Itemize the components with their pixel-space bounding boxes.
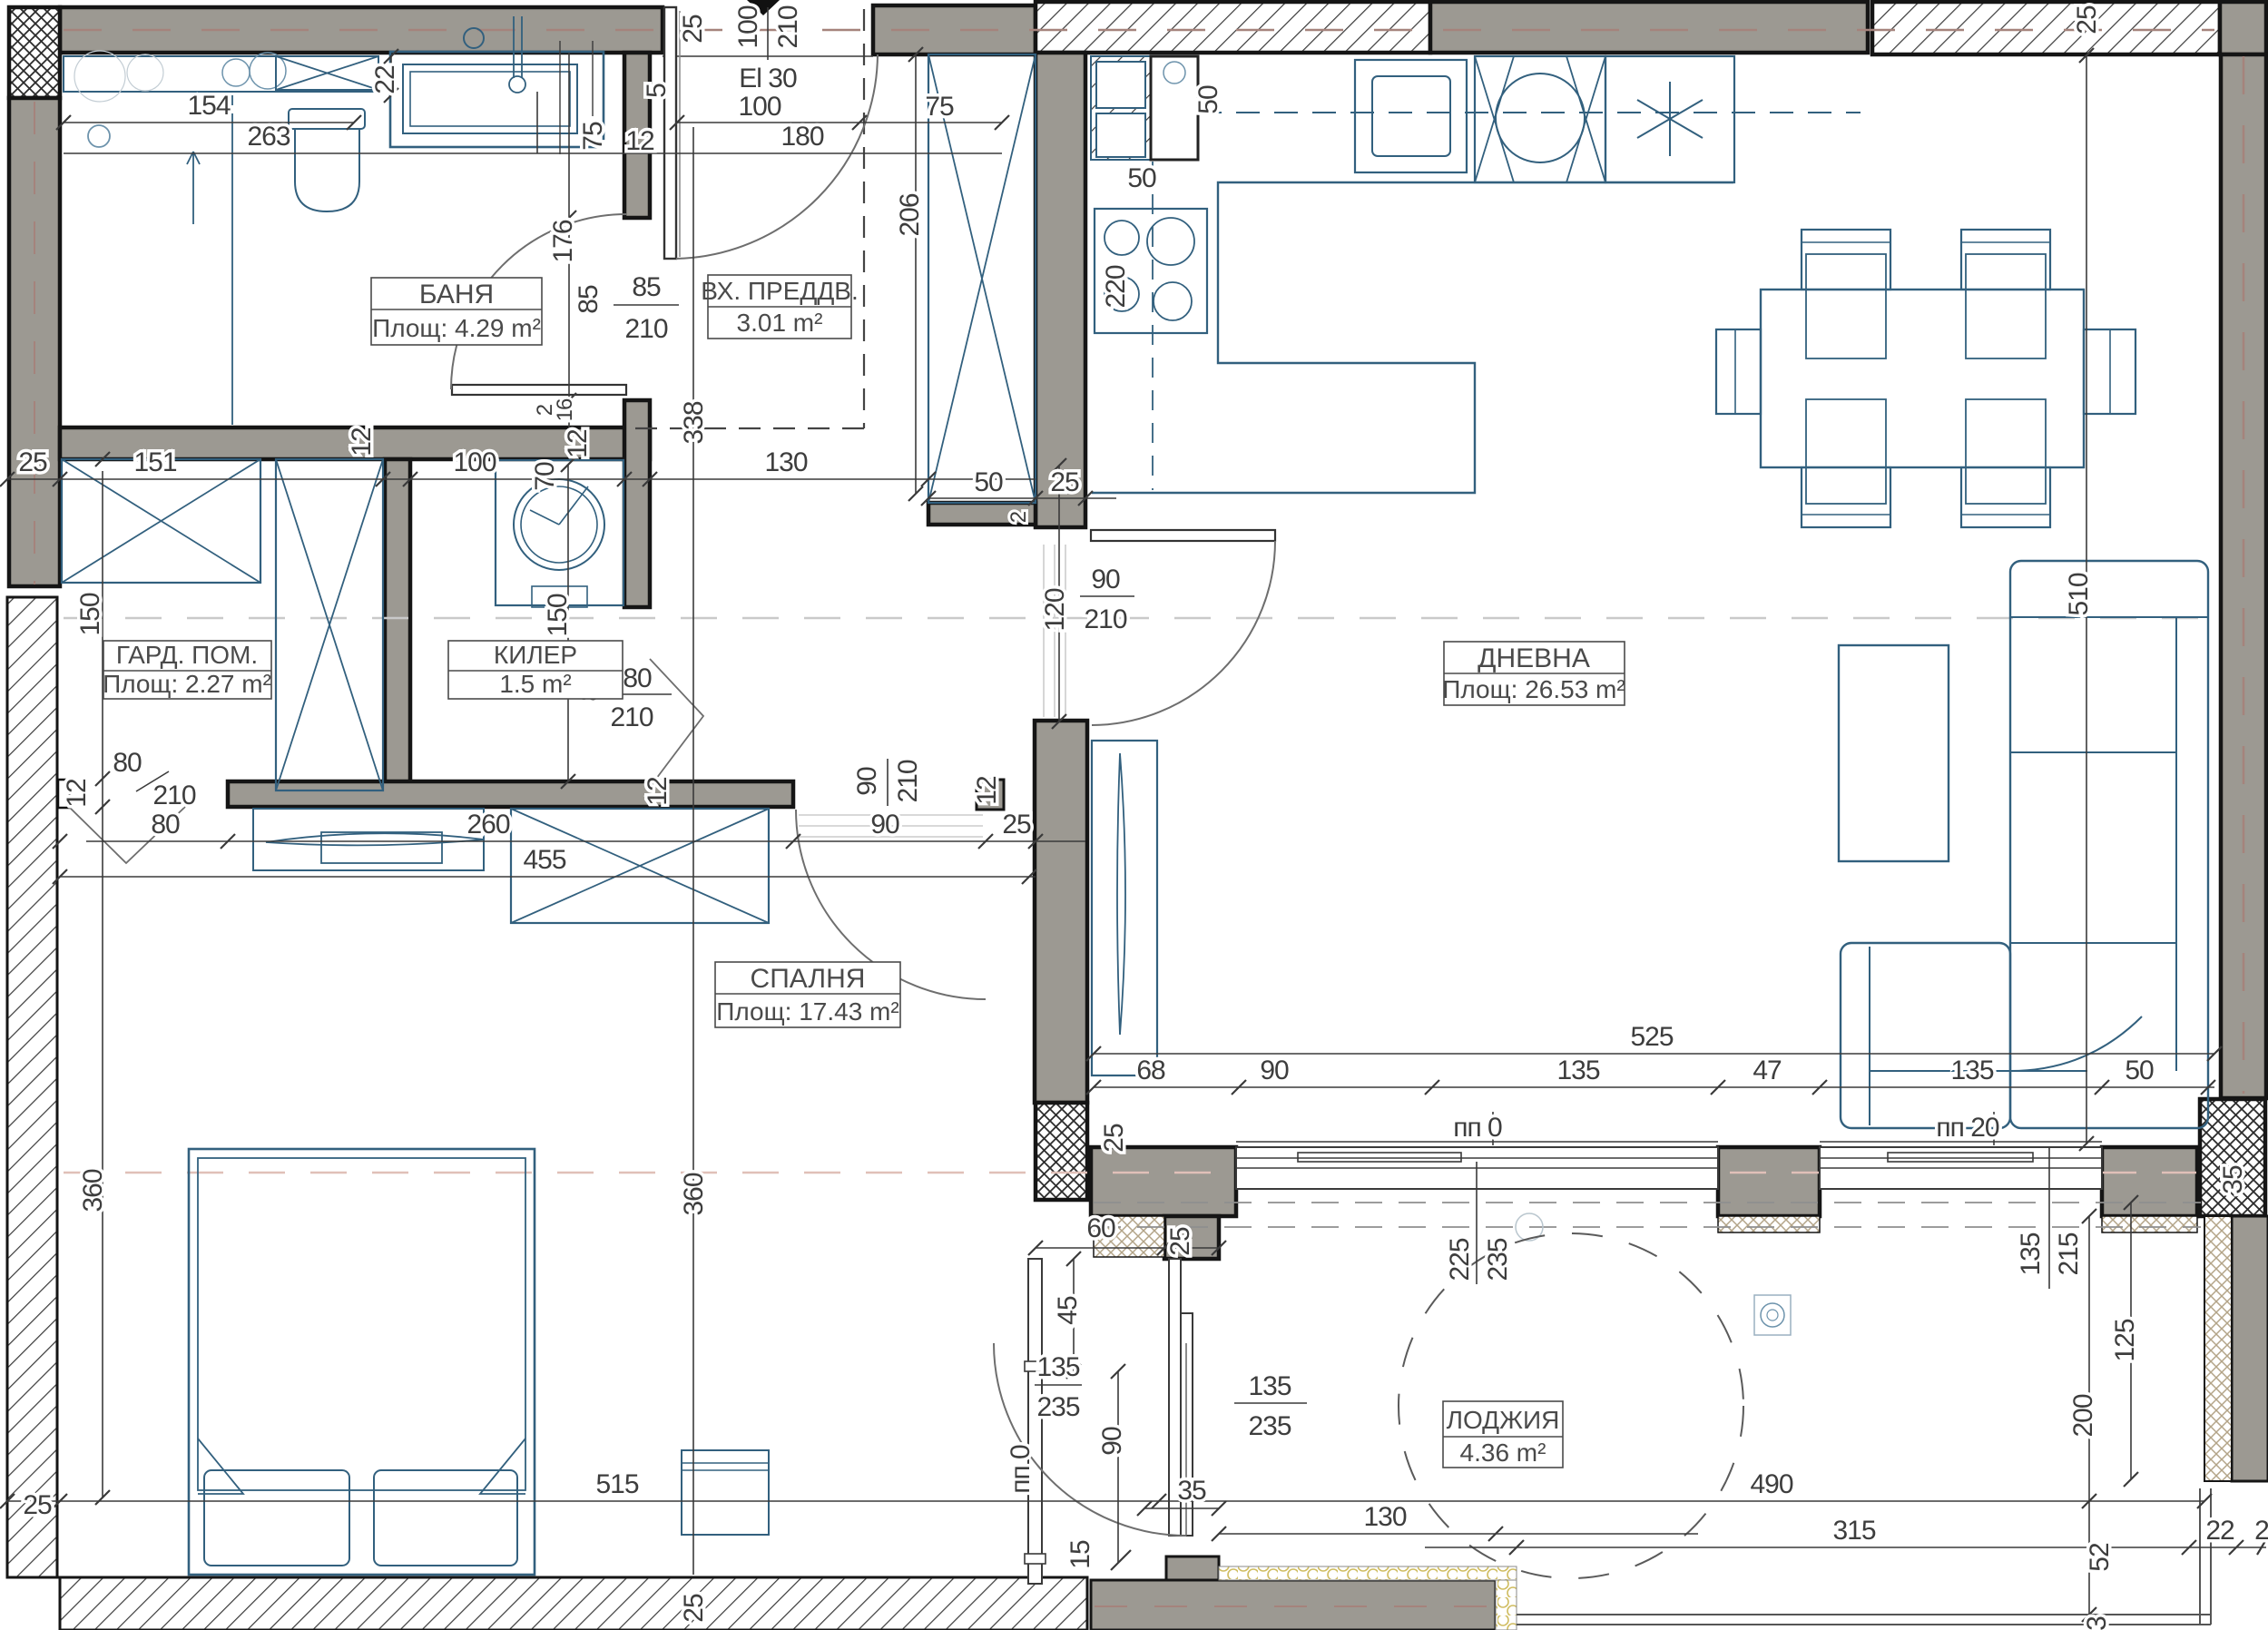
svg-text:210: 210 xyxy=(624,314,667,344)
svg-text:15: 15 xyxy=(1065,1540,1095,1569)
svg-text:35: 35 xyxy=(2218,1165,2248,1194)
svg-text:БАНЯ: БАНЯ xyxy=(419,280,494,309)
svg-text:150: 150 xyxy=(543,594,573,636)
svg-text:90: 90 xyxy=(1097,1427,1127,1456)
svg-text:120: 120 xyxy=(1040,588,1070,631)
svg-text:Площ: 26.53 m²: Площ: 26.53 m² xyxy=(1442,675,1625,703)
svg-text:220: 220 xyxy=(1101,265,1131,308)
svg-text:80: 80 xyxy=(151,810,180,840)
svg-text:151: 151 xyxy=(133,447,176,477)
svg-text:100: 100 xyxy=(453,447,496,477)
svg-text:12: 12 xyxy=(625,126,654,156)
svg-text:75: 75 xyxy=(578,122,608,151)
svg-text:50: 50 xyxy=(974,467,1003,497)
svg-text:52: 52 xyxy=(2085,1543,2115,1572)
svg-text:ЛОДЖИЯ: ЛОДЖИЯ xyxy=(1447,1406,1560,1434)
svg-text:90: 90 xyxy=(1091,565,1120,594)
svg-text:16: 16 xyxy=(553,398,577,421)
svg-text:1.5 m²: 1.5 m² xyxy=(499,670,571,698)
svg-text:510: 510 xyxy=(2064,573,2094,615)
svg-text:490: 490 xyxy=(1750,1469,1792,1499)
svg-text:135: 135 xyxy=(1248,1371,1291,1401)
svg-text:135: 135 xyxy=(2016,1232,2046,1275)
svg-text:СПАЛНЯ: СПАЛНЯ xyxy=(751,964,866,994)
svg-text:225: 225 xyxy=(1445,1238,1475,1281)
svg-text:КИЛЕР: КИЛЕР xyxy=(494,641,577,669)
svg-text:12: 12 xyxy=(62,779,92,808)
svg-text:135: 135 xyxy=(1950,1056,1993,1085)
svg-text:22: 22 xyxy=(370,65,400,94)
svg-text:25: 25 xyxy=(23,1490,52,1520)
svg-text:235: 235 xyxy=(1248,1411,1291,1441)
svg-text:Площ: 17.43 m²: Площ: 17.43 m² xyxy=(716,997,898,1026)
svg-text:85: 85 xyxy=(574,285,604,314)
svg-text:315: 315 xyxy=(1832,1516,1875,1546)
svg-text:455: 455 xyxy=(523,845,565,875)
svg-text:25: 25 xyxy=(678,15,708,44)
svg-text:25: 25 xyxy=(18,447,47,477)
svg-text:206: 206 xyxy=(895,193,925,236)
svg-text:25: 25 xyxy=(1099,1124,1129,1153)
svg-text:ГАРД. ПОМ.: ГАРД. ПОМ. xyxy=(116,641,258,669)
svg-text:130: 130 xyxy=(764,447,807,477)
svg-text:235: 235 xyxy=(1036,1392,1079,1422)
svg-text:176: 176 xyxy=(548,220,578,262)
svg-text:360: 360 xyxy=(679,1173,709,1215)
svg-text:80: 80 xyxy=(623,663,652,693)
svg-text:12: 12 xyxy=(347,427,377,457)
svg-text:210: 210 xyxy=(1084,604,1126,634)
svg-text:180: 180 xyxy=(781,122,823,152)
svg-text:210: 210 xyxy=(152,781,195,810)
svg-text:525: 525 xyxy=(1630,1022,1673,1052)
svg-text:154: 154 xyxy=(187,91,230,121)
svg-text:210: 210 xyxy=(893,760,923,802)
svg-text:Площ: 4.29 m²: Площ: 4.29 m² xyxy=(372,314,541,342)
svg-text:2: 2 xyxy=(2254,1516,2268,1546)
svg-text:47: 47 xyxy=(1753,1056,1782,1085)
svg-text:130: 130 xyxy=(1363,1502,1406,1532)
svg-text:пп 0: пп 0 xyxy=(1453,1113,1502,1143)
svg-text:2: 2 xyxy=(1006,511,1031,523)
svg-text:90: 90 xyxy=(852,767,882,796)
svg-text:El 30: El 30 xyxy=(739,64,797,93)
svg-text:360: 360 xyxy=(78,1169,108,1212)
svg-text:12: 12 xyxy=(563,429,593,458)
svg-text:22: 22 xyxy=(2205,1516,2234,1546)
svg-text:35: 35 xyxy=(1177,1476,1206,1506)
svg-text:5: 5 xyxy=(642,83,672,98)
svg-text:80: 80 xyxy=(113,748,142,778)
svg-text:25: 25 xyxy=(1050,467,1079,497)
svg-text:100: 100 xyxy=(738,92,781,122)
svg-text:68: 68 xyxy=(1136,1056,1165,1085)
svg-text:50: 50 xyxy=(2125,1056,2154,1085)
svg-text:135: 135 xyxy=(1556,1056,1599,1085)
svg-text:200: 200 xyxy=(2068,1394,2098,1437)
svg-text:25: 25 xyxy=(679,1594,709,1623)
svg-text:210: 210 xyxy=(610,702,653,732)
svg-text:210: 210 xyxy=(773,5,803,48)
svg-text:12: 12 xyxy=(643,777,673,806)
svg-text:ВХ. ПРЕДДВ.: ВХ. ПРЕДДВ. xyxy=(701,277,859,305)
svg-text:45: 45 xyxy=(1053,1296,1083,1325)
svg-text:215: 215 xyxy=(2054,1232,2084,1275)
svg-text:235: 235 xyxy=(1483,1238,1513,1281)
svg-text:150: 150 xyxy=(75,593,105,635)
svg-text:25: 25 xyxy=(2072,5,2102,34)
svg-text:85: 85 xyxy=(632,272,661,302)
svg-text:338: 338 xyxy=(679,401,709,444)
svg-text:90: 90 xyxy=(1260,1056,1289,1085)
svg-text:ДНЕВНА: ДНЕВНА xyxy=(1478,643,1590,673)
svg-text:260: 260 xyxy=(466,810,509,840)
svg-text:пп 0: пп 0 xyxy=(1006,1445,1036,1494)
svg-text:25: 25 xyxy=(1002,810,1031,840)
svg-text:90: 90 xyxy=(870,810,899,840)
svg-text:100: 100 xyxy=(733,5,763,48)
svg-text:3.01 m²: 3.01 m² xyxy=(737,309,823,337)
svg-text:50: 50 xyxy=(1193,85,1223,114)
svg-text:515: 515 xyxy=(595,1469,638,1499)
svg-text:60: 60 xyxy=(1086,1213,1115,1243)
svg-text:50: 50 xyxy=(1127,163,1156,193)
svg-text:125: 125 xyxy=(2110,1319,2140,1361)
svg-text:Площ: 2.27 m²: Площ: 2.27 m² xyxy=(103,670,271,698)
svg-text:12: 12 xyxy=(972,776,1002,805)
svg-text:пп 20: пп 20 xyxy=(1936,1113,1999,1143)
svg-text:263: 263 xyxy=(247,122,290,152)
svg-text:4.36 m²: 4.36 m² xyxy=(1460,1439,1546,1467)
svg-text:75: 75 xyxy=(925,92,954,122)
svg-text:135: 135 xyxy=(1036,1352,1079,1382)
svg-text:3: 3 xyxy=(2082,1616,2112,1630)
svg-text:70: 70 xyxy=(530,462,560,491)
svg-text:25: 25 xyxy=(1165,1227,1195,1256)
